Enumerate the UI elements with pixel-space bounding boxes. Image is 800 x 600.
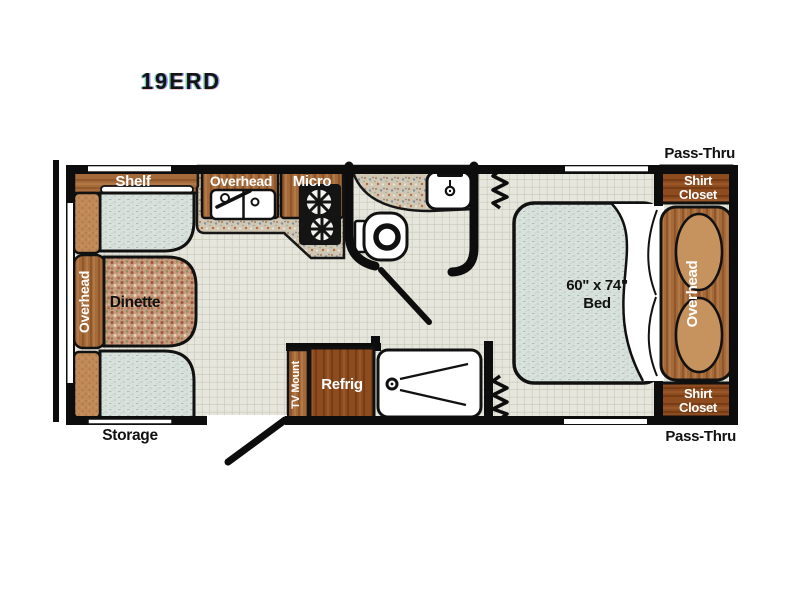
- dinette-bench-top: [100, 193, 194, 251]
- micro-label: Micro: [293, 173, 332, 190]
- bed-label: Bed: [583, 295, 611, 312]
- dinette-bench-bottom: [100, 351, 194, 421]
- shirt-closet-top-label-1: Shirt: [684, 173, 713, 188]
- tv-mount-label: TV Mount: [290, 361, 302, 409]
- window-top-bedroom: [565, 166, 648, 171]
- pass-thru-bottom-label: Pass-Thru: [665, 428, 736, 445]
- shirt-closet-bottom-label-2: Closet: [679, 400, 718, 415]
- storage-label: Storage: [102, 427, 158, 444]
- bed-size-label: 60" x 74": [566, 277, 628, 294]
- shelf-label: Shelf: [115, 173, 151, 190]
- rear-bumper: [53, 160, 59, 422]
- bench-side-bottom: [74, 352, 100, 418]
- window-rear-wall: [68, 203, 74, 383]
- toilet-icon: [355, 213, 407, 260]
- stove-burners-icon: [299, 184, 341, 245]
- pass-thru-top-label: Pass-Thru: [664, 145, 735, 162]
- window-top-rear: [88, 166, 171, 171]
- kitchen-sink-icon: [211, 190, 275, 219]
- bathroom-sink-icon: [427, 169, 471, 209]
- entry-door: [228, 420, 285, 462]
- storage-hatch: [88, 419, 172, 424]
- floorplan-image: 19ERD: [0, 0, 800, 600]
- dinette-label: Dinette: [110, 294, 161, 311]
- bench-side-top: [74, 193, 100, 253]
- refrig-label: Refrig: [321, 376, 363, 393]
- overhead-kitchen-label: Overhead: [210, 173, 272, 189]
- overhead-bedroom-label: Overhead: [684, 260, 701, 327]
- overhead-rear-label: Overhead: [76, 271, 92, 333]
- shirt-closet-bottom-label-1: Shirt: [684, 386, 713, 401]
- floorplan-svg: Shelf Overhead Dinette Storage Overhead …: [0, 0, 800, 600]
- shirt-closet-top-label-2: Closet: [679, 187, 718, 202]
- window-bottom-bedroom: [564, 419, 647, 424]
